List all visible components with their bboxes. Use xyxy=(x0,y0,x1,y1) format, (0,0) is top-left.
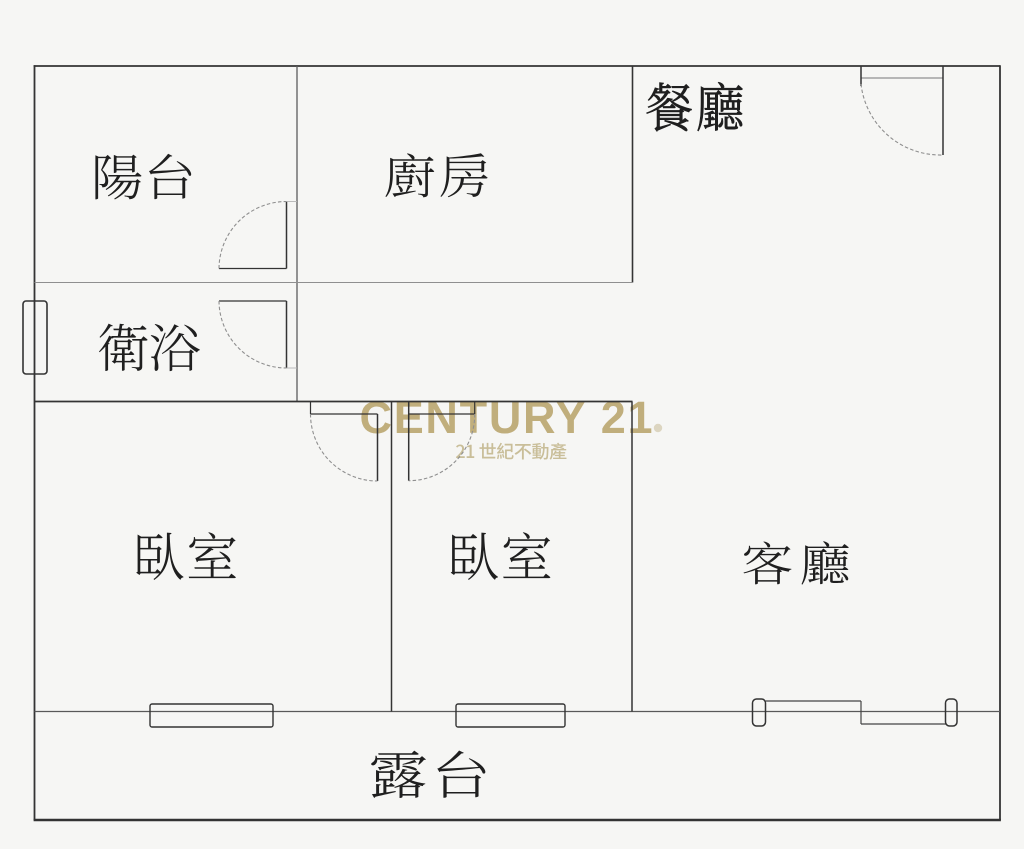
svg-text:臥室: 臥室 xyxy=(447,516,554,591)
svg-text:21 世紀不動產: 21 世紀不動產 xyxy=(455,438,567,464)
svg-text:客廳: 客廳 xyxy=(741,528,858,596)
svg-text:CENTURY 21: CENTURY 21 xyxy=(360,392,653,443)
svg-text:餐廳: 餐廳 xyxy=(645,66,747,143)
svg-text:臥室: 臥室 xyxy=(133,516,240,591)
svg-text:衛浴: 衛浴 xyxy=(98,307,201,382)
svg-text:露台: 露台 xyxy=(368,736,493,810)
svg-text:陽台: 陽台 xyxy=(91,138,196,210)
svg-text:廚房: 廚房 xyxy=(383,139,493,207)
